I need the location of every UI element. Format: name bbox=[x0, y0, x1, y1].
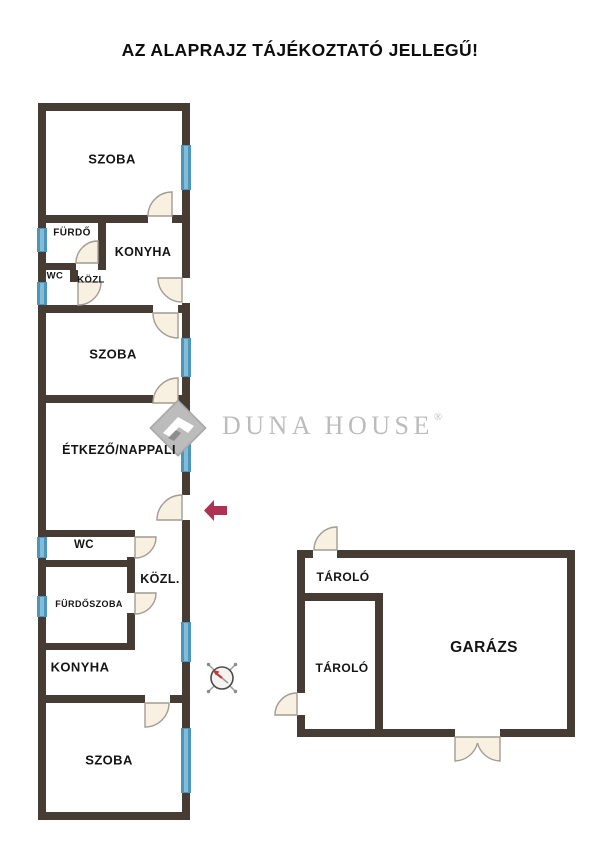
window bbox=[181, 338, 191, 377]
room-label-konyha-bottom: KONYHA bbox=[51, 660, 110, 675]
doors bbox=[76, 192, 500, 761]
dunahouse-watermark: DUNA HOUSE® bbox=[222, 411, 442, 441]
room-label-szoba-mid: SZOBA bbox=[89, 347, 137, 362]
room-label-garazs: GARÁZS bbox=[450, 639, 518, 657]
wall-segment bbox=[172, 215, 190, 223]
room-label-tarolo-top: TÁROLÓ bbox=[316, 570, 369, 584]
wall-segment bbox=[38, 812, 190, 820]
registered-mark: ® bbox=[434, 411, 442, 423]
wall-segment bbox=[297, 729, 455, 737]
room-label-furdoszoba: FÜRDŐSZOBA bbox=[55, 599, 123, 609]
room-label-konyha-top: KONYHA bbox=[115, 245, 172, 259]
door-arc bbox=[153, 313, 178, 338]
room-label-kozl-bottom: KÖZL. bbox=[140, 572, 180, 586]
wall-segment bbox=[38, 530, 135, 537]
wall-segment bbox=[337, 550, 575, 558]
room-label-szoba-bottom: SZOBA bbox=[85, 753, 133, 768]
window bbox=[181, 622, 191, 662]
wall-segment bbox=[170, 695, 190, 703]
wall-segment bbox=[297, 715, 305, 737]
door-arc bbox=[135, 537, 156, 558]
door-arc bbox=[76, 241, 98, 263]
wall-segment bbox=[297, 550, 305, 693]
wall-segment bbox=[38, 103, 190, 111]
floor-plan-page: AZ ALAPRAJZ TÁJÉKOZTATÓ JELLEGŰ! bbox=[0, 0, 600, 852]
wall-segment bbox=[38, 263, 76, 270]
dunahouse-watermark-text: DUNA HOUSE bbox=[222, 411, 434, 440]
window bbox=[181, 145, 191, 190]
room-label-kozl-top: KÖZL bbox=[77, 275, 104, 286]
wall-segment bbox=[567, 550, 575, 737]
wall-segment bbox=[98, 215, 106, 270]
room-label-szoba-top: SZOBA bbox=[88, 152, 136, 167]
wall-segment bbox=[38, 695, 145, 703]
wall-segment bbox=[375, 601, 383, 729]
window bbox=[37, 228, 47, 252]
door-arc bbox=[135, 593, 156, 614]
wall-segment bbox=[38, 103, 46, 820]
room-label-tarolo-bottom: TÁROLÓ bbox=[315, 661, 368, 675]
door-arc bbox=[314, 527, 337, 550]
wall-segment bbox=[38, 215, 148, 223]
door-arc bbox=[153, 378, 178, 403]
window bbox=[37, 282, 47, 305]
wall-segment bbox=[38, 643, 135, 650]
door-arc bbox=[275, 693, 297, 715]
room-label-furdo: FÜRDŐ bbox=[53, 228, 91, 239]
entrance-arrow-icon bbox=[204, 500, 227, 521]
wall-segment bbox=[98, 263, 106, 270]
room-label-wc-bottom: WC bbox=[74, 539, 94, 551]
wall-segment bbox=[38, 305, 153, 313]
window bbox=[181, 728, 191, 793]
wall-segment bbox=[182, 103, 190, 278]
wall-segment bbox=[297, 593, 383, 601]
compass-icon bbox=[207, 663, 237, 693]
wall-segment bbox=[46, 560, 135, 567]
wall-segment bbox=[38, 395, 153, 403]
wall-segment bbox=[500, 729, 575, 737]
window bbox=[37, 596, 47, 617]
wall-segment bbox=[178, 305, 190, 313]
door-arc bbox=[148, 192, 172, 216]
door-arc bbox=[158, 278, 182, 302]
room-label-wc-top: WC bbox=[47, 271, 64, 282]
door-arc bbox=[145, 703, 169, 727]
room-label-etkezo-nappali: ÉTKEZŐ/NAPPALI bbox=[62, 443, 176, 457]
door-arc bbox=[157, 495, 182, 520]
window bbox=[37, 537, 47, 558]
garage-double-door bbox=[455, 737, 500, 761]
